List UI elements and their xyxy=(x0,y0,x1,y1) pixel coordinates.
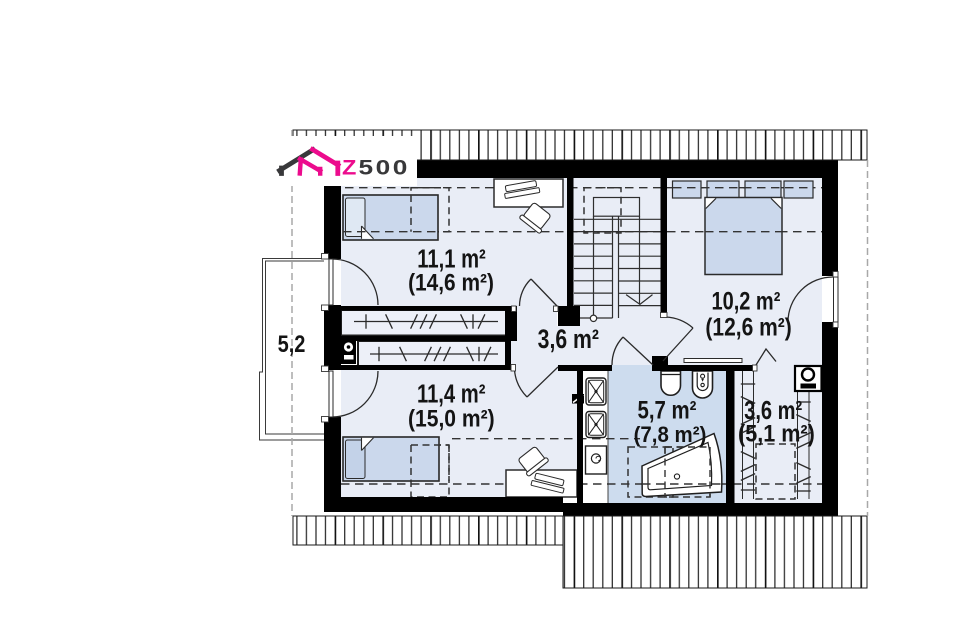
svg-text:(15,0 m²): (15,0 m²) xyxy=(408,404,495,432)
svg-text:5,7 m²: 5,7 m² xyxy=(638,395,697,423)
svg-text:5,2: 5,2 xyxy=(278,330,306,357)
svg-text:500: 500 xyxy=(359,156,410,180)
svg-text:(5,1 m²): (5,1 m²) xyxy=(738,421,815,447)
svg-text:3,6 m²: 3,6 m² xyxy=(538,325,599,355)
svg-text:Z: Z xyxy=(342,156,356,180)
svg-text:(14,6 m²): (14,6 m²) xyxy=(408,269,494,296)
svg-text:(7,8 m²): (7,8 m²) xyxy=(634,422,707,447)
svg-text:10,2 m²: 10,2 m² xyxy=(711,288,780,316)
svg-text:(12,6 m²): (12,6 m²) xyxy=(705,313,791,341)
